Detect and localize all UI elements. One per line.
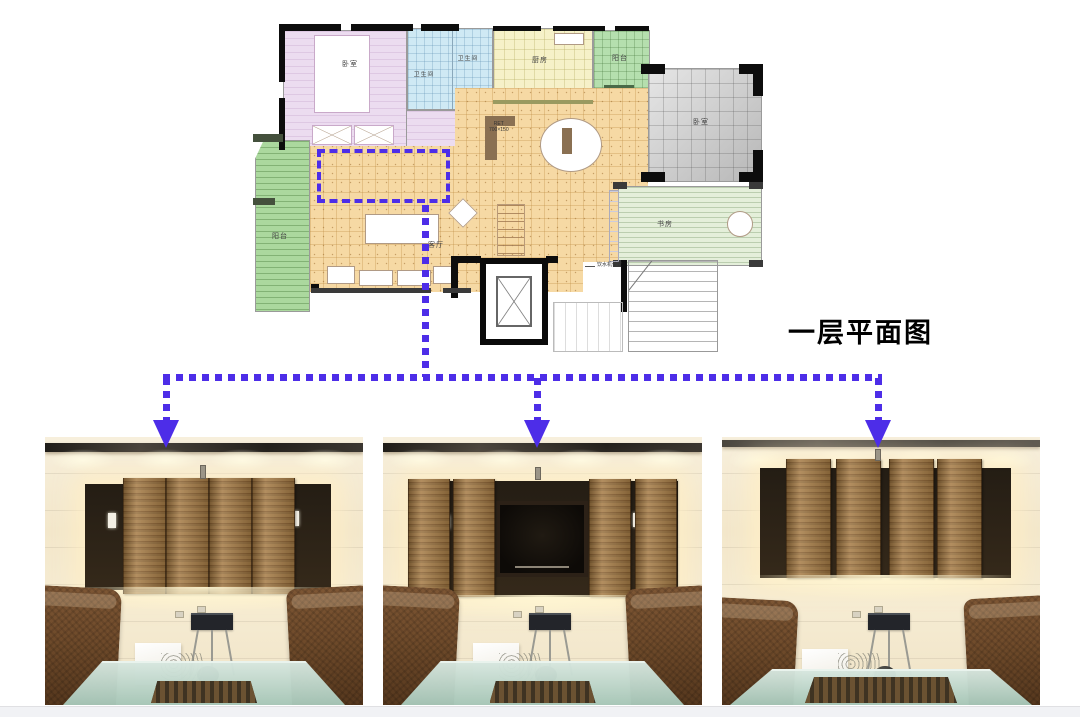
down-arrow-icon [153, 420, 179, 448]
wardrobe [312, 125, 352, 145]
connector-drop-3 [875, 378, 882, 424]
sink [554, 33, 584, 45]
room-label: 厨房 [532, 57, 548, 64]
wood-sliding-panel [166, 478, 209, 594]
projector [191, 613, 233, 630]
tv-screen [496, 501, 588, 577]
wall [253, 198, 275, 205]
wall [753, 72, 763, 96]
wood-sliding-panel [123, 478, 166, 594]
cabinet-tag: RET 700×150 [489, 122, 509, 133]
speaker-highlight [108, 513, 116, 528]
wall-outlet [175, 611, 184, 618]
stair-run [497, 204, 525, 256]
chair-block [562, 128, 572, 154]
ceiling-sensor [535, 467, 541, 480]
connector-stem [422, 205, 429, 377]
wall [351, 24, 413, 31]
room-bedroom-2: 卧室 [648, 68, 762, 182]
wood-sliding-panel [209, 478, 252, 594]
floor-plan: 卧室 卫生间 卫生间 厨房 阳台 卧室 书房 阳台 RET [253, 14, 773, 359]
room-label: 卧室 [342, 61, 358, 68]
leader-line [585, 266, 595, 267]
decor-square [448, 198, 477, 227]
elevator-car [496, 276, 532, 327]
wall [253, 134, 283, 142]
room-study: 书房 [618, 186, 762, 266]
wall [283, 24, 341, 31]
wall [739, 172, 763, 182]
room-label: 阳台 [612, 55, 628, 62]
wall-outlet [535, 606, 544, 613]
photo-panels-spread [722, 437, 1040, 705]
room-balcony-west: 阳台 [255, 140, 310, 312]
wood-sliding-panel [635, 479, 677, 597]
wall [279, 98, 285, 150]
wall [311, 288, 431, 293]
room-label: 阳台 [272, 233, 288, 240]
ceiling-sensor [875, 449, 881, 461]
room-label: 卧室 [693, 119, 709, 126]
wood-sliding-panel [453, 479, 495, 597]
staircase [628, 260, 718, 352]
projector [529, 613, 571, 630]
wood-sliding-panel [589, 479, 631, 597]
down-arrow-icon [524, 420, 550, 448]
woven-mat [490, 681, 596, 703]
wall [641, 64, 665, 74]
sofa [359, 270, 393, 286]
connector-drop-2 [534, 378, 541, 424]
woven-mat [805, 677, 957, 703]
wall [279, 24, 285, 82]
elevator-shaft [480, 258, 548, 345]
wall [493, 100, 593, 104]
wall [493, 26, 541, 31]
wall [749, 182, 763, 189]
wall [553, 26, 605, 31]
equipment-annotation: 饮水机位置 [597, 263, 622, 269]
woven-mat [151, 681, 257, 703]
page-title: 一层平面图 [788, 311, 933, 350]
table [727, 211, 753, 237]
wood-sliding-panel [252, 478, 295, 594]
connector-horizontal [163, 374, 882, 381]
wood-sliding-panel [786, 459, 831, 578]
wall [421, 24, 459, 31]
room-bedroom-main: 卧室 [283, 30, 407, 148]
wood-sliding-panel [937, 459, 982, 578]
wall [443, 288, 471, 293]
wall [749, 260, 763, 267]
wood-sliding-panel [408, 479, 450, 597]
photo-panels-closed [45, 437, 363, 705]
fixture-column [609, 190, 619, 262]
bed [314, 35, 370, 113]
wall [615, 26, 649, 31]
wall-outlet [874, 606, 883, 613]
wardrobe [354, 125, 394, 145]
room-label: 客厅 [428, 242, 444, 249]
page-edge-strip [0, 706, 1080, 717]
room-label: 书房 [657, 221, 673, 228]
wall-outlet [852, 611, 861, 618]
ceiling-sensor [200, 465, 206, 479]
wood-sliding-panel [836, 459, 881, 578]
wall [613, 182, 627, 189]
projector [868, 613, 910, 630]
wood-sliding-panel [889, 459, 934, 578]
wall-outlet [513, 611, 522, 618]
wall-outlet [197, 606, 206, 613]
down-arrow-icon [865, 420, 891, 448]
wall [641, 172, 665, 182]
room-bedroom-corridor [407, 110, 457, 148]
room-label: 卫生间 [458, 56, 478, 62]
room-label: 卫生间 [414, 72, 434, 78]
connector-drop-1 [163, 378, 170, 424]
highlight-zone-rect [317, 149, 450, 203]
lobby [553, 302, 623, 352]
sofa [327, 266, 355, 284]
photo-panels-open [383, 437, 702, 705]
